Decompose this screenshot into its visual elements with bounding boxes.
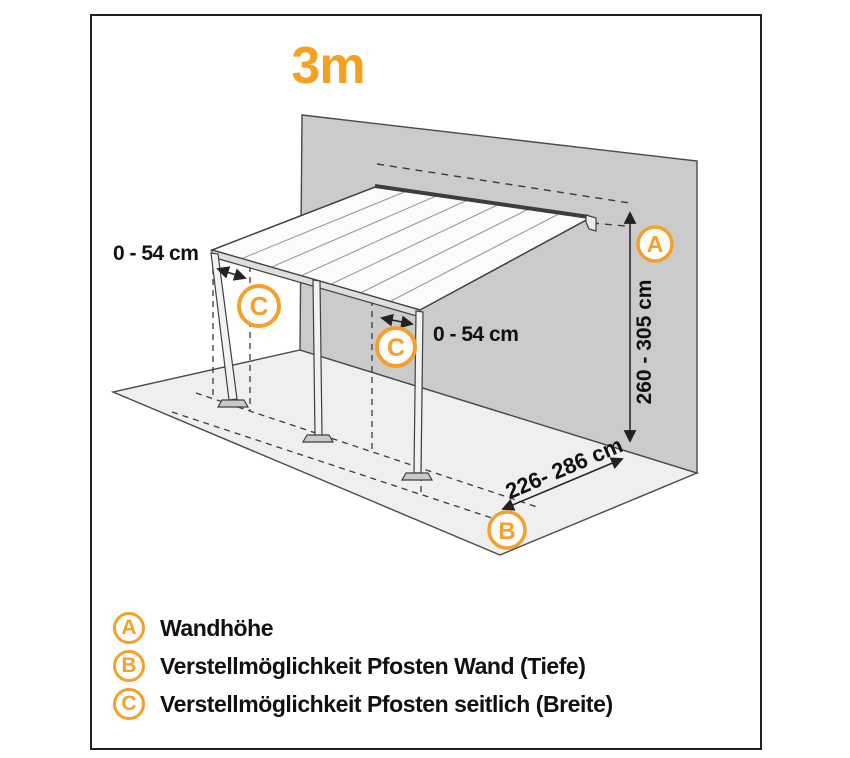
screenshot-canvas: 3m [0,0,850,758]
dim-label-side-left: 0 - 54 cm [113,242,198,265]
badge-c-left: C [239,286,279,326]
svg-text:C: C [387,334,405,362]
post-foot-left [218,400,248,407]
post-foot-right [402,473,432,480]
legend-label-b: Verstellmöglichkeit Pfosten Wand (Tiefe) [160,653,585,680]
legend-badge-a: A [113,612,145,644]
svg-text:A: A [647,231,664,257]
dim-label-side-right: 0 - 54 cm [433,323,518,346]
patio-cover-diagram: 0 - 54 cm 0 - 54 cm 260 - 305 cm 226- 28… [0,0,850,758]
svg-text:B: B [498,518,515,545]
legend-badge-b: B [113,650,145,682]
svg-text:C: C [250,291,269,321]
arrow-side-left [218,269,245,278]
badge-a: A [638,227,672,261]
post-foot-middle [303,435,333,442]
legend-row-post-depth: B Verstellmöglichkeit Pfosten Wand (Tief… [113,650,585,682]
badge-c-right: C [377,328,415,366]
post-middle [313,280,322,436]
dim-label-wall-height: 260 - 305 cm [633,280,656,405]
badge-b: B [489,512,525,548]
legend-badge-c: C [113,688,145,720]
legend-row-post-side: C Verstellmöglichkeit Pfosten seitlich (… [113,688,613,720]
legend-row-wall-height: A Wandhöhe [113,612,273,644]
legend-label-c: Verstellmöglichkeit Pfosten seitlich (Br… [160,691,613,718]
post-front-right [414,311,423,473]
legend-label-a: Wandhöhe [160,615,273,642]
